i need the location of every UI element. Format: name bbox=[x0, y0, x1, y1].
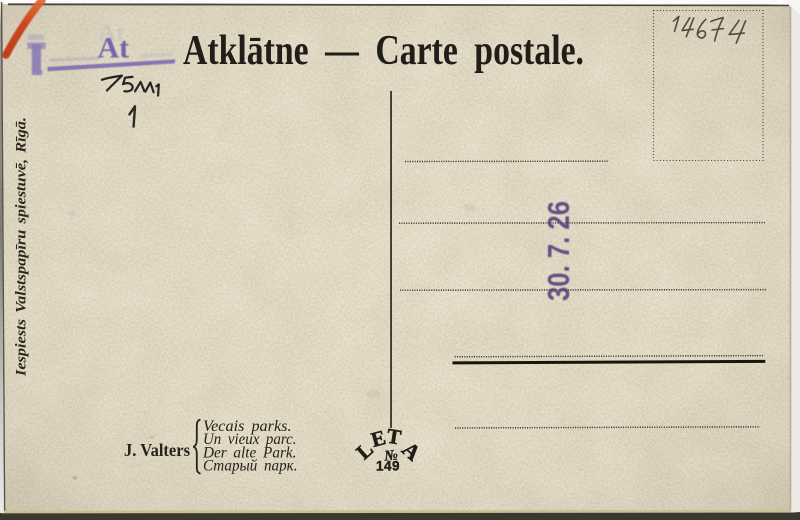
svg-text:Atklātne — Carte postale.: Atklātne — Carte postale. bbox=[183, 28, 584, 74]
svg-text:At: At bbox=[98, 20, 125, 47]
svg-text:30. 7. 26: 30. 7. 26 bbox=[541, 201, 576, 301]
svg-text:Iespiests Valstspapīru spiestu: Iespiests Valstspapīru spiestuvē, Rīgā. bbox=[14, 117, 30, 377]
svg-text:Старый парк.: Старый парк. bbox=[203, 458, 298, 475]
svg-text:149: 149 bbox=[376, 459, 400, 474]
svg-text:J. Valters: J. Valters bbox=[124, 440, 190, 460]
